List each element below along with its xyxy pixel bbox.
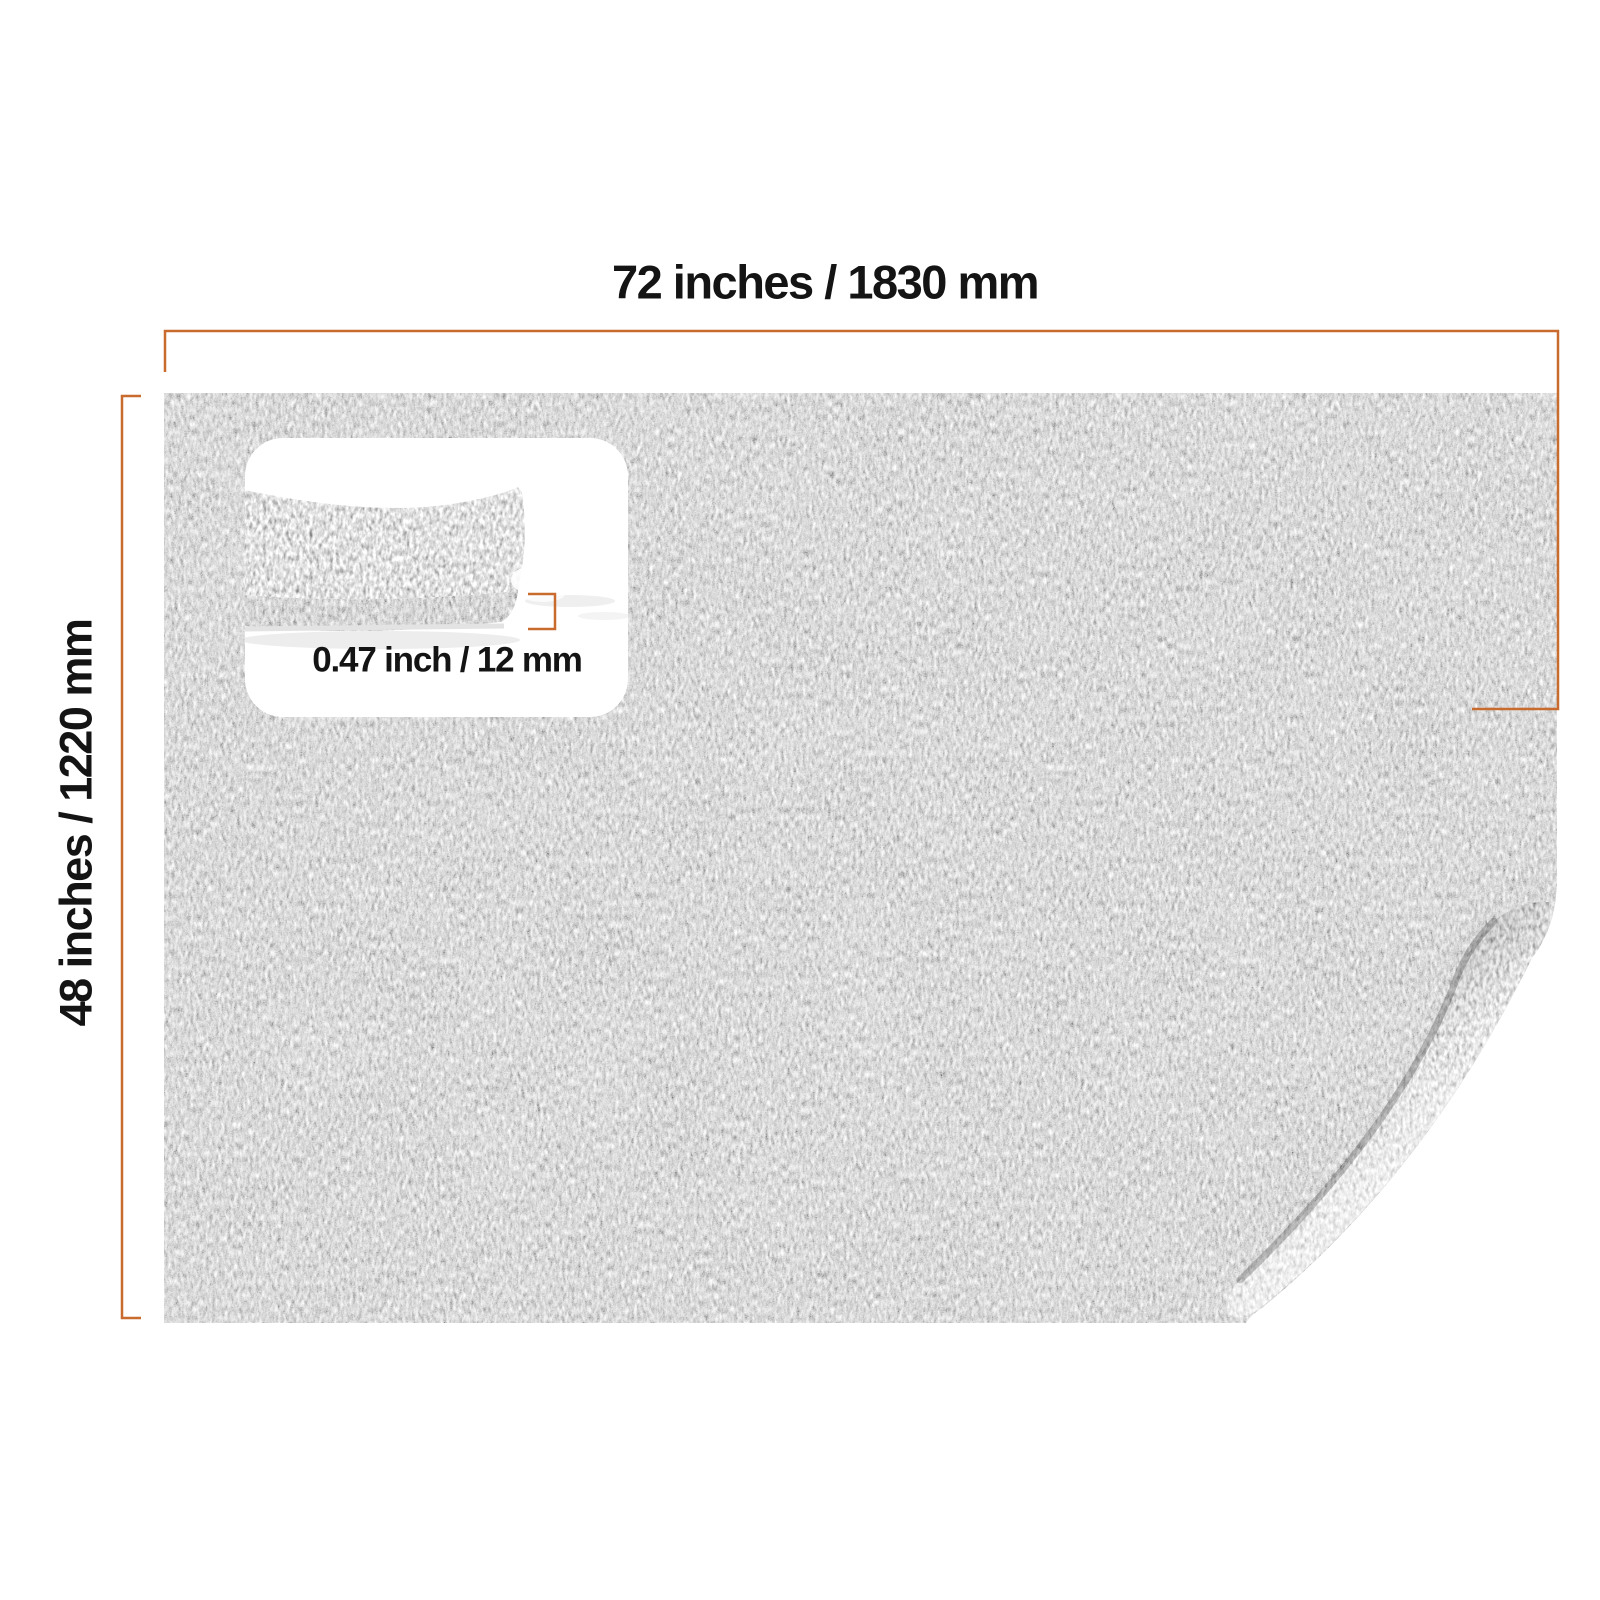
inset-bg-blur-fiber [578, 612, 630, 620]
inset-table-line [245, 626, 504, 629]
thickness-label: 0.47 inch / 12 mm [312, 643, 581, 678]
height-label: 48 inches / 1220 mm [54, 620, 99, 1027]
height-dimension-line [122, 396, 141, 1318]
product-dimension-image: 72 inches / 1830 mm 48 inches / 1220 mm … [0, 0, 1600, 1600]
width-label: 72 inches / 1830 mm [612, 259, 1038, 306]
product-photo-canvas [0, 0, 1600, 1600]
